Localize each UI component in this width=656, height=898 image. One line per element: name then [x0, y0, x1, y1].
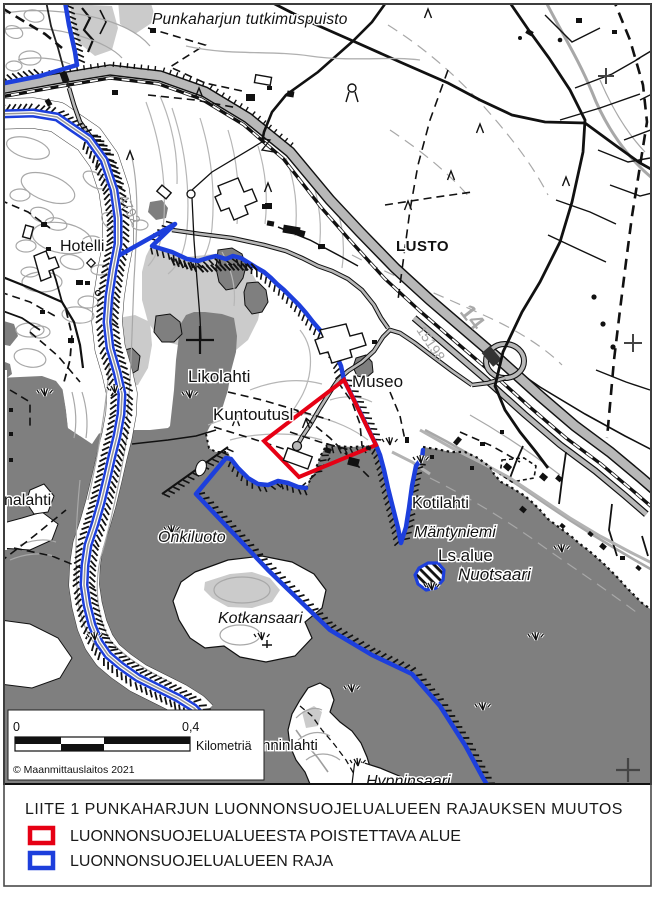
svg-text:Onkiluoto: Onkiluoto — [158, 529, 226, 546]
svg-text:Hotelli: Hotelli — [60, 238, 104, 255]
svg-text:Punkaharjun tutkimuspuisto: Punkaharjun tutkimuspuisto — [152, 11, 348, 28]
svg-text:0: 0 — [13, 720, 20, 734]
svg-text:nninlahti: nninlahti — [262, 737, 318, 754]
svg-text:Ls.alue: Ls.alue — [438, 546, 493, 565]
svg-text:© Maanmittauslaitos 2021: © Maanmittauslaitos 2021 — [13, 764, 135, 776]
svg-text:LIITE 1 PUNKAHARJUN LUONNONSUO: LIITE 1 PUNKAHARJUN LUONNONSUOJELUALUEEN… — [25, 801, 623, 818]
svg-text:Mäntyniemi: Mäntyniemi — [414, 524, 496, 541]
svg-text:0,4: 0,4 — [182, 720, 199, 734]
svg-text:Kotilahti: Kotilahti — [412, 495, 469, 512]
svg-text:Kilometriä: Kilometriä — [196, 739, 252, 753]
svg-text:LUSTO: LUSTO — [396, 238, 449, 255]
svg-text:nalahti: nalahti — [4, 492, 51, 509]
svg-text:Likolahti: Likolahti — [188, 367, 250, 386]
svg-text:Nuotsaari: Nuotsaari — [458, 565, 532, 584]
svg-text:LUONNONSUOJELUALUEEN RAJA: LUONNONSUOJELUALUEEN RAJA — [70, 853, 334, 870]
svg-text:Museo: Museo — [352, 372, 403, 391]
svg-text:LUONNONSUOJELUALUEESTA POISTET: LUONNONSUOJELUALUEESTA POISTETTAVA ALUE — [70, 828, 461, 845]
svg-text:Kotkansaari: Kotkansaari — [218, 610, 303, 627]
svg-text:Kuntoutusl: Kuntoutusl — [213, 405, 293, 424]
